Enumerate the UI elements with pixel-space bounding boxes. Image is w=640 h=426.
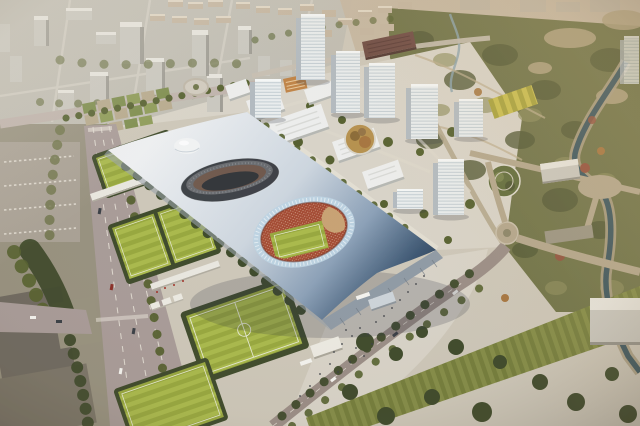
photo-overlays: [0, 0, 640, 426]
scene-shape: [0, 0, 640, 426]
rendering-photo: [0, 0, 640, 426]
scene-svg: [0, 0, 640, 426]
scene-root: [0, 0, 640, 426]
